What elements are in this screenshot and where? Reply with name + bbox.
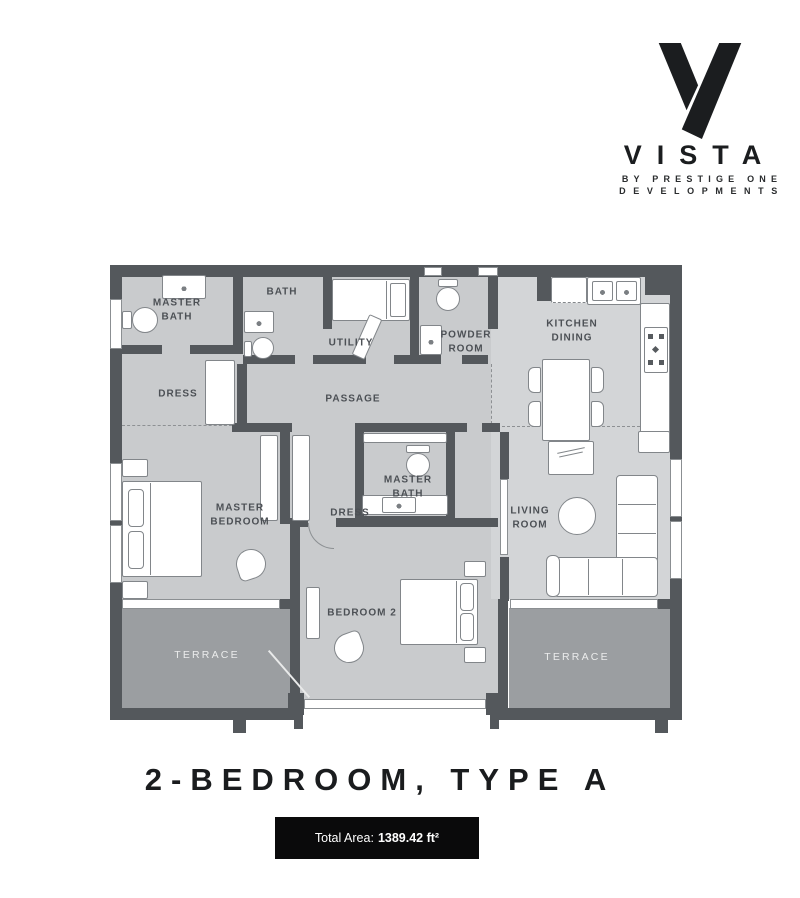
room-label-master-bedroom: MASTER BEDROOM	[210, 502, 269, 529]
sink-icon	[420, 325, 442, 355]
wall-stub	[655, 720, 668, 733]
sink-icon	[244, 311, 274, 333]
wall-stub	[288, 693, 304, 715]
wall-segment	[323, 277, 332, 329]
sink-bowl	[592, 281, 613, 301]
bed-pillow	[460, 583, 474, 611]
room-label-living-room: LIVING ROOM	[510, 505, 549, 532]
wall-segment	[419, 355, 441, 364]
sink-icon	[162, 275, 206, 299]
wall-segment	[190, 345, 243, 354]
sofa-cushion-line	[618, 533, 656, 534]
wall-segment	[232, 423, 292, 432]
toilet-tank-icon	[406, 445, 430, 453]
window-segment	[670, 521, 682, 579]
burner	[659, 334, 664, 339]
sink-bowl	[616, 281, 637, 301]
floor-plan: MASTER BATH BATH UTILITY POWDER ROOM KIT…	[110, 263, 682, 735]
room-label-dress-1: DRESS	[158, 387, 197, 401]
sofa-cushion-line	[618, 504, 656, 505]
room-label-terrace-left: TERRACE	[174, 648, 240, 662]
wall-segment	[394, 355, 410, 364]
wall-stub	[490, 715, 499, 729]
window-segment	[304, 699, 486, 709]
burner	[648, 334, 653, 339]
wall-segment	[482, 423, 500, 432]
kitchen-counter	[551, 277, 587, 303]
room-label-dress-2: DRESS	[330, 506, 369, 520]
window-segment	[110, 525, 122, 583]
wall-segment	[110, 708, 302, 720]
stove-icon	[644, 327, 668, 373]
room-label-terrace-right: TERRACE	[544, 650, 610, 664]
wall-segment	[313, 355, 332, 364]
wall-segment	[280, 599, 300, 609]
brand-tagline-line1: BY PRESTIGE ONE	[610, 174, 794, 184]
wall-segment	[500, 432, 509, 479]
wardrobe-icon	[205, 360, 235, 425]
wall-segment	[280, 432, 290, 524]
dining-table-icon	[542, 359, 590, 441]
vista-v-logo-icon	[652, 40, 748, 142]
window-segment	[110, 299, 122, 349]
window-segment	[478, 267, 498, 276]
total-area-badge: Total Area: 1389.42 ft²	[275, 817, 479, 859]
bed-fold-line	[456, 581, 457, 643]
room-label-master-bath-2: MASTER BATH	[384, 474, 432, 501]
kitchen-cabinet	[638, 431, 670, 453]
burner	[652, 346, 659, 353]
wall-segment	[110, 608, 122, 720]
wall-segment	[670, 608, 682, 720]
wall-segment	[233, 277, 243, 352]
wardrobe-icon	[306, 587, 320, 639]
coffee-table-icon	[558, 497, 596, 535]
window-segment	[424, 267, 442, 276]
bed-fold-line	[386, 281, 387, 319]
page: VISTA BY PRESTIGE ONE DEVELOPMENTS	[0, 0, 800, 898]
shower-shelf	[363, 433, 447, 443]
chair-icon	[528, 367, 541, 393]
chair-icon	[528, 401, 541, 427]
brand-logo: VISTA BY PRESTIGE ONE DEVELOPMENTS	[608, 38, 792, 206]
chair-icon	[591, 367, 604, 393]
sofa-armrest	[546, 555, 560, 597]
zone-divider	[122, 425, 232, 426]
room-label-utility: UTILITY	[329, 336, 374, 350]
wall-segment	[122, 345, 162, 354]
room-label-bath: BATH	[266, 285, 297, 299]
wall-pillar	[645, 277, 670, 295]
bed-pillow	[390, 283, 406, 317]
wall-segment	[462, 355, 488, 364]
window-segment	[122, 599, 280, 609]
nightstand-icon	[122, 581, 148, 599]
sofa-icon	[616, 475, 658, 563]
zone-divider	[491, 364, 492, 424]
sliding-door	[500, 479, 508, 555]
bed-pillow	[460, 613, 474, 641]
wall-segment	[488, 277, 498, 329]
toilet-icon	[436, 287, 460, 311]
nightstand-icon	[122, 459, 148, 477]
toilet-tank-icon	[244, 341, 252, 357]
brand-name: VISTA	[608, 140, 792, 171]
wall-stub	[294, 715, 303, 729]
sofa-icon	[554, 557, 658, 597]
wall-segment	[500, 557, 509, 601]
wall-segment	[410, 277, 419, 364]
toilet-tank-icon	[438, 279, 458, 287]
bed-pillow	[128, 489, 144, 527]
burner	[648, 360, 653, 365]
wall-pillar	[537, 273, 551, 301]
nightstand-icon	[464, 647, 486, 663]
room-label-powder-room: POWDER ROOM	[441, 329, 492, 356]
kitchen-sink-icon	[587, 277, 641, 305]
toilet-tank-icon	[122, 311, 132, 329]
tv-console-icon	[548, 441, 594, 475]
window-segment	[670, 459, 682, 517]
room-label-master-bath-1: MASTER BATH	[153, 297, 201, 324]
plan-title: 2-BEDROOM, TYPE A	[0, 762, 760, 798]
wardrobe-icon	[292, 435, 310, 521]
bed-fold-line	[150, 483, 151, 575]
sofa-cushion-line	[622, 559, 623, 595]
room-label-kitchen-dining: KITCHEN DINING	[546, 318, 597, 345]
window-segment	[110, 463, 122, 521]
wall-segment	[490, 708, 682, 720]
room-label-passage: PASSAGE	[325, 392, 380, 406]
nightstand-icon	[464, 561, 486, 577]
toilet-icon	[252, 337, 274, 359]
total-area-label: Total Area:	[315, 831, 374, 845]
total-area-value: 1389.42 ft²	[378, 831, 439, 845]
wall-segment	[658, 599, 670, 609]
room-label-bedroom-2: BEDROOM 2	[327, 606, 397, 620]
wall-stub	[486, 693, 502, 715]
chair-icon	[591, 401, 604, 427]
wall-segment	[355, 423, 455, 432]
burner	[659, 360, 664, 365]
bed-pillow	[128, 531, 144, 569]
wall-segment	[455, 423, 467, 432]
window-segment	[510, 599, 658, 609]
wall-segment	[237, 364, 247, 428]
sofa-cushion-line	[588, 559, 589, 595]
wall-stub	[233, 720, 246, 733]
brand-tagline-line2: DEVELOPMENTS	[610, 186, 794, 196]
